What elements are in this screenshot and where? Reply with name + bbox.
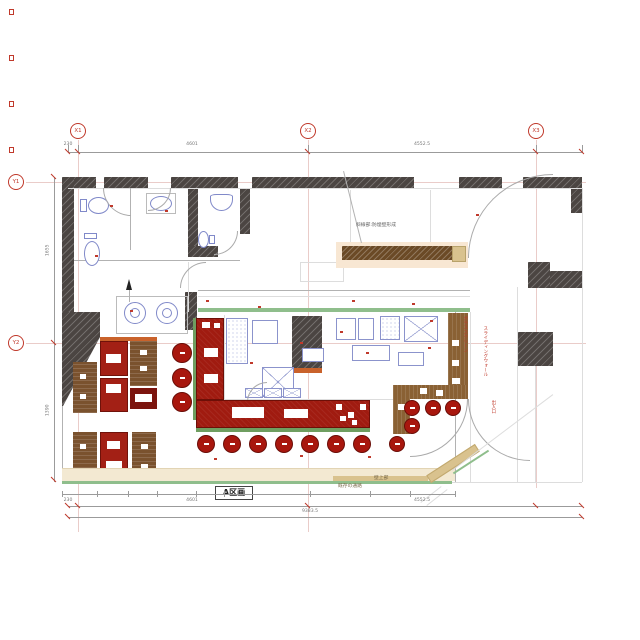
counter-main-vertical xyxy=(196,318,224,400)
label-chip xyxy=(140,366,147,371)
tiny-red-note xyxy=(130,310,133,312)
faint-line xyxy=(430,190,431,242)
label-chip xyxy=(452,340,459,346)
wall-segment xyxy=(252,177,414,188)
dim-line-left xyxy=(54,177,55,482)
floor-strip-green xyxy=(62,481,452,484)
label-chip xyxy=(336,404,342,410)
dim-text-top-1: 230 xyxy=(56,143,80,148)
shelf-hatched-band xyxy=(342,246,460,260)
counter-right-horizontal xyxy=(393,385,468,399)
tiny-red-note xyxy=(428,347,431,349)
edge-mark xyxy=(9,101,14,107)
site-boundary-right xyxy=(582,188,583,482)
kitchen-equipment xyxy=(380,316,400,340)
label-chip xyxy=(420,388,427,394)
wall-segment xyxy=(171,177,238,188)
wall-segment xyxy=(459,177,502,188)
label-chip xyxy=(202,322,210,328)
tiny-red-note xyxy=(258,306,261,308)
door-arc xyxy=(410,399,468,457)
stool xyxy=(172,343,192,363)
kitchen-north-line xyxy=(198,290,470,291)
bench xyxy=(130,341,157,386)
wall-top-note: 壁上部 xyxy=(374,477,388,482)
grid-marker-x1: X1 xyxy=(70,123,86,139)
dim-tick xyxy=(157,491,158,497)
right-annotation-2: スライディングウォール xyxy=(482,326,487,410)
dim-tick xyxy=(196,491,197,497)
dim-tick xyxy=(310,491,311,497)
tiny-red-note xyxy=(430,320,433,322)
dim-line-bottom-seg xyxy=(62,494,455,495)
toilet-bowl-icon xyxy=(84,241,100,266)
stool xyxy=(301,435,319,453)
label-chip xyxy=(80,444,86,449)
partition-wall xyxy=(188,188,198,250)
partition-wall xyxy=(240,188,250,234)
label-chip xyxy=(436,390,443,396)
tiny-red-note xyxy=(340,331,343,333)
tiny-red-note xyxy=(110,205,113,207)
dim-text-bottom-2: 4601 xyxy=(178,499,206,504)
kitchen-equipment xyxy=(398,352,424,366)
stool xyxy=(275,435,293,453)
label-chip xyxy=(360,404,366,410)
pillar xyxy=(518,332,553,366)
kitchen-edge xyxy=(224,315,225,400)
dim-text-bottom-3: 4552.5 xyxy=(404,499,440,504)
corridor-note: 既存の通路 xyxy=(338,485,362,490)
section-arrow-icon xyxy=(126,279,132,290)
dim-tick xyxy=(370,491,371,497)
label-chip xyxy=(348,412,354,418)
edge-mark xyxy=(9,55,14,61)
tiny-red-note xyxy=(412,303,415,305)
toilet-tank-icon xyxy=(84,233,97,239)
wall-left xyxy=(62,177,74,312)
area-label: A区画 xyxy=(215,486,253,500)
dim-tick xyxy=(410,491,411,497)
label-chip xyxy=(141,444,148,449)
grid-marker-y2: Y2 xyxy=(8,335,24,351)
tiny-red-note xyxy=(250,362,253,364)
basin-drain-icon xyxy=(162,308,172,318)
right-annotation-1: ガラススクリーン xyxy=(462,316,467,392)
grid-marker-y1: Y1 xyxy=(8,174,24,190)
label-chip xyxy=(80,394,86,399)
label-chip xyxy=(106,354,121,363)
tiny-red-note xyxy=(206,300,209,302)
stool xyxy=(223,435,241,453)
dim-line-total xyxy=(68,517,582,518)
label-chip xyxy=(135,394,152,402)
dim-line-top xyxy=(68,152,582,153)
bench xyxy=(73,432,97,468)
hatch-note: 斜線部:防煙壁形成 xyxy=(356,224,436,229)
label-chip xyxy=(232,407,264,418)
label-chip xyxy=(140,350,147,355)
door-arc xyxy=(214,231,238,255)
wall-L-vertical xyxy=(528,262,550,288)
label-chip xyxy=(340,416,346,421)
stool xyxy=(389,436,405,452)
tiny-red-note xyxy=(300,455,303,457)
stool xyxy=(172,392,192,412)
equipment-block-base xyxy=(292,368,322,373)
dim-text-left-2: 1390 xyxy=(47,399,52,421)
label-chip xyxy=(80,374,86,379)
label-chip xyxy=(204,348,218,357)
door-arc xyxy=(247,382,267,402)
tiny-red-note xyxy=(165,210,168,212)
kitchen-equipment xyxy=(352,345,390,361)
kitchen-equipment xyxy=(283,388,301,398)
tiny-red-note xyxy=(214,458,217,460)
kitchen-counter-edge xyxy=(198,308,470,312)
wall-L-horizontal xyxy=(550,271,583,288)
dim-tick xyxy=(62,491,63,497)
shelf-end-block xyxy=(452,246,466,262)
toilet-tank-icon xyxy=(80,199,87,212)
label-chip xyxy=(352,420,357,425)
pillar-drop-line xyxy=(535,366,536,482)
dim-line-bottom xyxy=(68,506,582,507)
label-chip xyxy=(204,374,218,383)
dim-tick xyxy=(455,491,456,497)
counter-edge-green xyxy=(196,428,370,432)
wall-segment xyxy=(104,177,148,188)
dim-text-total: 9383.5 xyxy=(288,510,332,515)
label-chip xyxy=(452,360,459,366)
grid-marker-x3: X3 xyxy=(528,123,544,139)
label-chip xyxy=(214,323,220,328)
right-annotation-3: 出入口 xyxy=(490,400,495,452)
restroom-south-line xyxy=(74,260,240,261)
kitchen-equipment xyxy=(302,348,324,362)
kitchen-equipment xyxy=(358,318,374,340)
dim-tick xyxy=(128,491,129,497)
floor-plan-sheet: X1 X2 X3 Y1 Y2 230 4601 4552.5 1655 1390 xyxy=(0,0,640,640)
stool xyxy=(353,435,371,453)
label-chip xyxy=(284,409,308,418)
stool xyxy=(172,368,192,388)
kitchen-equipment xyxy=(252,320,278,344)
section-arrow-stem xyxy=(129,290,130,302)
dim-text-left-1: 1655 xyxy=(47,239,52,261)
kitchen-north-line2 xyxy=(198,296,470,297)
edge-mark xyxy=(9,9,14,15)
tiny-red-note xyxy=(366,352,369,354)
tiny-red-note xyxy=(368,456,371,458)
stool xyxy=(197,435,215,453)
door-arc xyxy=(180,262,206,288)
edge-mark xyxy=(9,147,14,153)
label-chip xyxy=(106,384,121,393)
dim-text-top-3: 4552.5 xyxy=(404,143,440,148)
dim-text-top-2: 4601 xyxy=(178,143,206,148)
tiny-red-note xyxy=(352,300,355,302)
tiny-red-note xyxy=(476,214,479,216)
tiny-red-note xyxy=(300,342,303,344)
grid-marker-x2: X2 xyxy=(300,123,316,139)
label-chip xyxy=(107,441,120,449)
wall-right-top xyxy=(571,188,582,213)
stool xyxy=(327,435,345,453)
stool xyxy=(249,435,267,453)
dim-tick xyxy=(224,491,225,497)
counter-main-horizontal xyxy=(196,400,370,428)
bench xyxy=(73,362,97,413)
label-chip xyxy=(452,378,460,384)
toilet-bowl-icon xyxy=(198,231,209,248)
tiny-red-note xyxy=(95,255,98,257)
door-arc xyxy=(103,188,131,216)
dim-tick xyxy=(97,491,98,497)
urinal-icon xyxy=(210,194,233,211)
kitchen-equipment xyxy=(226,318,248,364)
kitchen-equipment xyxy=(336,318,356,340)
